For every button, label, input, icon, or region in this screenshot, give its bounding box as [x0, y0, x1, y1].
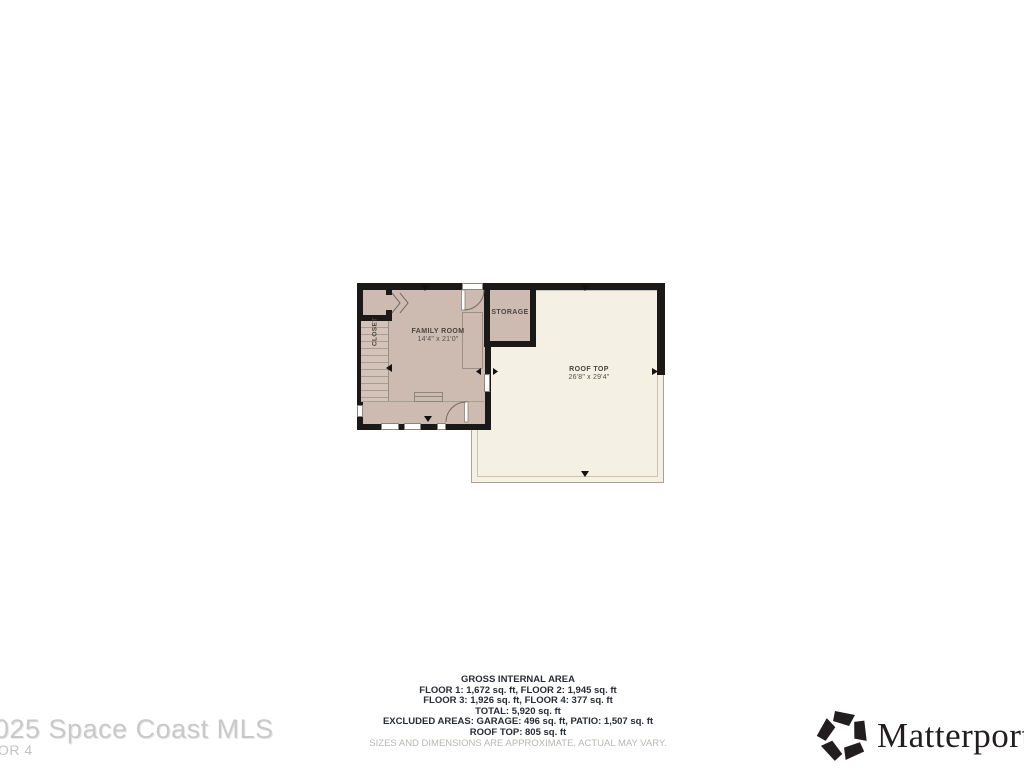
- wall-closet-stub-top: [386, 289, 392, 295]
- furniture-detail-line: [415, 396, 442, 397]
- roof-top-dimensions: 26'8" x 29'4": [569, 374, 610, 382]
- family-room-label: FAMILY ROOM: [411, 328, 464, 336]
- window-bottom-2: [404, 423, 421, 430]
- family-room-dimensions: 14'4" x 21'0": [411, 336, 464, 344]
- floor-watermark: OR 4: [0, 742, 33, 758]
- storage-label: STORAGE: [491, 309, 528, 317]
- matterport-branding: Matterport®: [816, 709, 1024, 763]
- area-summary-disclaimer: SIZES AND DIMENSIONS ARE APPROXIMATE, AC…: [278, 739, 758, 750]
- matterport-logo-icon: [816, 709, 870, 763]
- wall-closet-stub-bottom: [386, 310, 392, 318]
- roof-top-label-group: ROOF TOP 26'8" x 29'4": [569, 366, 610, 382]
- wall-roof-right: [657, 283, 665, 375]
- mls-watermark: 025 Space Coast MLS: [0, 714, 274, 745]
- matterport-wordmark: Matterport®: [877, 716, 1024, 756]
- wall-top: [357, 283, 665, 290]
- closet-label: CLOSET: [372, 317, 379, 346]
- window-left: [357, 405, 363, 417]
- area-summary-title: GROSS INTERNAL AREA: [278, 675, 758, 686]
- window-bottom-1: [381, 423, 399, 430]
- wardrobe-niche: [462, 312, 483, 369]
- window-bottom-3: [437, 423, 446, 430]
- storage-label-group: STORAGE: [491, 309, 528, 317]
- floor-plan-page: CLOSET FAMILY ROOM 14'4" x 21'0" STORAGE…: [0, 0, 1024, 768]
- area-summary-line: ROOF TOP: 805 sq. ft: [278, 728, 758, 739]
- door-opening-top: [462, 283, 483, 290]
- area-summary: GROSS INTERNAL AREA FLOOR 1: 1,672 sq. f…: [278, 675, 758, 749]
- roof-top-label: ROOF TOP: [569, 366, 610, 374]
- window-right: [484, 374, 490, 392]
- sideboard-furniture: [414, 392, 443, 402]
- family-room-label-group: FAMILY ROOM 14'4" x 21'0": [411, 328, 464, 344]
- matterport-wordmark-text: Matterport: [877, 716, 1024, 755]
